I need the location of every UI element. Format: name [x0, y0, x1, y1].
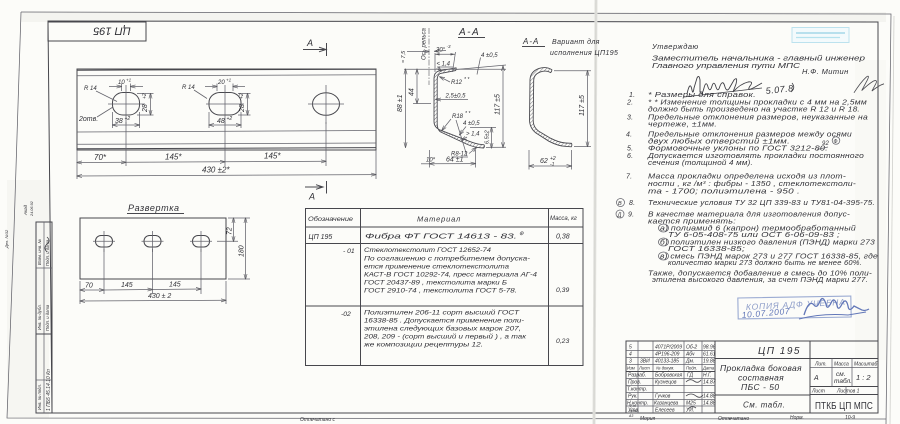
svg-text:+2: +2 — [239, 93, 245, 99]
svg-text:4: 4 — [629, 352, 632, 358]
svg-text:8.: 8. — [629, 200, 635, 207]
svg-text:См. табл.: См. табл. — [743, 401, 785, 410]
svg-text:Изм: Изм — [627, 366, 635, 371]
svg-text:ГД: ГД — [687, 373, 694, 379]
svg-text:Ось рельса: Ось рельса — [422, 27, 428, 60]
svg-text:ГОСТ 20437-89 , текстолита м: ГОСТ 20437-89 , текстолита марки Б — [364, 280, 508, 287]
svg-text:Фибра ФТ ГОСТ 14613 - 83.: Фибра ФТ ГОСТ 14613 - 83. — [365, 233, 517, 241]
svg-text:24.06.92: 24.06.92 — [30, 200, 34, 217]
svg-text:+1: +1 — [126, 78, 132, 83]
svg-text:Технические условия ТУ 32 ЦП: Технические условия ТУ 32 ЦП 339-83 и ТУ… — [648, 200, 875, 207]
svg-text:Прокладка боковая: Прокладка боковая — [720, 363, 802, 373]
svg-text:Лист: Лист — [638, 366, 650, 371]
svg-text:Разраб.: Разраб. — [628, 373, 646, 379]
svg-text:92: 92 — [822, 141, 830, 147]
svg-text:Предельные отклонения размеров: Предельные отклонения размеров, неуказан… — [648, 114, 868, 122]
svg-text:должно быть произведено на уча: должно быть произведено на участке R 12 … — [648, 106, 860, 114]
svg-text:3: 3 — [629, 359, 632, 365]
svg-text:Рук.: Рук. — [628, 394, 638, 400]
svg-text:Формовочные уклоны по ГОСТ: Формовочные уклоны по ГОСТ 3212-80. — [648, 146, 828, 153]
svg-text:Норм.: Норм. — [790, 415, 804, 421]
svg-text:количество марки 273 должно бы: количество марки 273 должно быть не мене… — [668, 259, 862, 267]
svg-text:180: 180 — [239, 245, 246, 257]
svg-text:Акад: Акад — [23, 204, 28, 216]
svg-text:38: 38 — [115, 118, 123, 125]
svg-text:пров.: пров. — [629, 409, 638, 413]
svg-text:Взам. инв. №: Взам. инв. № — [37, 239, 42, 265]
svg-text:двух любых отверстий ±1мм.: двух любых отверстий ±1мм. — [648, 138, 790, 146]
svg-text:10-9: 10-9 — [845, 415, 855, 421]
svg-text:Стеклотекстолит ГОСТ 12652-74: Стеклотекстолит ГОСТ 12652-74 — [364, 247, 491, 254]
svg-text:16338-85 . Допускается примен: 16338-85 . Допускается применение поли- — [364, 318, 525, 325]
svg-text:КАСТ-В ГОСТ 10292-74, пресс: КАСТ-В ГОСТ 10292-74, пресс материала АГ… — [364, 272, 537, 279]
svg-text:-1: -1 — [550, 162, 555, 168]
svg-text:ности , кг /м³ : фибры - 135: ности , кг /м³ : фибры - 1350 , стеклоте… — [648, 180, 857, 188]
svg-text:4 ±0,5: 4 ±0,5 — [463, 121, 480, 127]
svg-text:-3: -3 — [447, 44, 451, 49]
svg-text:3.: 3. — [627, 115, 633, 122]
svg-text:составная: составная — [738, 373, 784, 383]
svg-text:исполнения ЦП195: исполнения ЦП195 — [550, 50, 618, 57]
svg-text:Об-2: Об-2 — [686, 345, 697, 351]
svg-text:14.87: 14.87 — [703, 380, 716, 386]
svg-text:Материал: Материал — [417, 215, 461, 224]
svg-text:табл.: табл. — [834, 377, 852, 385]
svg-text:48: 48 — [217, 118, 225, 125]
svg-text:ПБС - 50: ПБС - 50 — [741, 382, 780, 392]
svg-text:Д: Д — [617, 213, 622, 219]
svg-text:14.88: 14.88 — [703, 394, 716, 400]
svg-text:№ докум.: № докум. — [656, 366, 674, 371]
svg-text:28: 28 — [142, 104, 149, 113]
svg-text:А: А — [306, 38, 313, 48]
svg-text:Предельные отклонения размеров: Предельные отклонения размеров между ося… — [648, 131, 852, 139]
svg-text:* *: * * — [464, 77, 470, 83]
svg-text:сечения (толщиной 4 мм).: сечения (толщиной 4 мм). — [648, 159, 753, 167]
svg-text:Листов 1: Листов 1 — [836, 389, 860, 395]
svg-text:⊛: ⊛ — [519, 231, 524, 237]
svg-text:430 ±2*: 430 ±2* — [202, 166, 230, 175]
svg-text:Подп. и дата: Подп. и дата — [45, 304, 50, 331]
svg-text:145*: 145* — [165, 153, 182, 162]
svg-text:чертеже, ±1мм.: чертеже, ±1мм. — [648, 122, 717, 129]
svg-text:2отв.: 2отв. — [78, 116, 98, 123]
svg-text:1 : 2: 1 : 2 — [856, 373, 871, 382]
svg-text:ГОСТ 2910-74 , текстолита: ГОСТ 2910-74 , текстолита ГОСТ 5-78. — [364, 288, 517, 295]
svg-text:А-А: А-А — [522, 37, 539, 46]
svg-text:+2: +2 — [142, 93, 148, 99]
svg-text:та - 1700; полиэтилена - 950: та - 1700; полиэтилена - 950 . — [648, 189, 800, 196]
svg-text:* Размеры для справок.: * Размеры для справок. — [648, 91, 756, 99]
svg-text:0,23: 0,23 — [556, 338, 569, 345]
svg-text:7.: 7. — [626, 174, 632, 181]
svg-text:А: А — [813, 375, 819, 382]
svg-text:0,38: 0,38 — [556, 234, 570, 241]
svg-text:430 ± 2: 430 ± 2 — [148, 293, 171, 300]
svg-text:≈ 7,5: ≈ 7,5 — [401, 50, 407, 63]
svg-text:А3: А3 — [628, 414, 633, 418]
svg-text:Масса: Масса — [834, 362, 849, 368]
svg-text:Бобровская: Бобровская — [655, 373, 683, 379]
svg-text:R12: R12 — [451, 80, 463, 86]
svg-text:4Р196-209: 4Р196-209 — [655, 352, 680, 358]
svg-text:R 14: R 14 — [182, 85, 195, 91]
svg-text:R18: R18 — [452, 114, 464, 120]
svg-text:9.: 9. — [628, 212, 634, 219]
svg-text:Допускается изготовлять прокла: Допускается изготовлять прокладки постоя… — [647, 152, 864, 160]
svg-text:19.88: 19.88 — [703, 359, 716, 365]
svg-text:117 ±5: 117 ±5 — [495, 94, 502, 115]
svg-text:Главного управления пути МПС: Главного управления пути МПС — [652, 61, 801, 70]
svg-text:R 14: R 14 — [84, 86, 97, 92]
svg-text:* *: * * — [465, 111, 471, 117]
svg-text:Пров.: Пров. — [628, 380, 641, 386]
svg-text:62: 62 — [540, 158, 548, 165]
svg-text:40133-185: 40133-185 — [655, 359, 679, 365]
svg-text:В качестве материала для и: В качестве материала для изготовления до… — [648, 211, 851, 219]
svg-text:В: В — [618, 201, 622, 207]
svg-text:145: 145 — [169, 282, 181, 289]
svg-text:10: 10 — [118, 80, 125, 86]
svg-text:Утверждаю: Утверждаю — [651, 42, 699, 51]
svg-text:М25: М25 — [686, 401, 696, 407]
svg-text:1 ПБ5 45.14.10 Кп: 1 ПБ5 45.14.10 Кп — [46, 369, 52, 411]
svg-text:3ВИ: 3ВИ — [640, 359, 650, 365]
svg-text:По соглашению с потребителем: По соглашению с потребителем допуска- — [364, 255, 531, 263]
svg-text:28: 28 — [239, 104, 246, 113]
svg-text:А: А — [308, 192, 315, 202]
svg-text:1.: 1. — [629, 92, 635, 99]
svg-text:же композиции рецептуры 12.: же композиции рецептуры 12. — [363, 342, 483, 349]
svg-text:Развертка: Развертка — [128, 203, 180, 213]
svg-text:ется применение стеклотексто: ется применение стеклотекстолита — [364, 264, 509, 271]
svg-text:10*: 10* — [426, 158, 436, 164]
svg-text:ЦП 195: ЦП 195 — [92, 25, 130, 37]
svg-text:0,39: 0,39 — [556, 287, 569, 294]
svg-text:70*: 70* — [94, 153, 107, 162]
svg-text:см.: см. — [836, 371, 846, 378]
svg-text:Отпечатано с: Отпечатано с — [300, 417, 335, 423]
svg-text:А-А: А-А — [458, 27, 480, 38]
svg-text:98.96: 98.96 — [703, 345, 716, 351]
svg-text:Вариант для: Вариант для — [552, 38, 600, 46]
svg-text:Инв. № дубл.: Инв. № дубл. — [37, 304, 42, 330]
svg-text:Т.контр.: Т.контр. — [627, 387, 647, 393]
svg-text:< 1,4: < 1,4 — [437, 62, 451, 68]
svg-text:+2: +2 — [125, 116, 131, 122]
svg-text:61.61: 61.61 — [703, 352, 716, 358]
svg-text:Лист: Лист — [811, 389, 825, 395]
svg-text:Абч: Абч — [685, 352, 695, 358]
svg-text:-02: -02 — [341, 311, 351, 318]
svg-text:Дата: Дата — [702, 366, 715, 371]
svg-text:88 ±1: 88 ±1 — [397, 94, 404, 112]
svg-text:Деп. №32: Деп. №32 — [4, 229, 9, 249]
svg-text:Дм.: Дм. — [685, 359, 694, 365]
svg-text:5.07.8: 5.07.8 — [765, 83, 794, 96]
svg-text:Казанцева: Казанцева — [654, 401, 679, 407]
svg-text:Ф-т: Ф-т — [629, 404, 636, 408]
svg-text:этилена высокого давления, за: этилена высокого давления, за счет ПЭНД … — [652, 276, 868, 284]
svg-text:Елесеев: Елесеев — [655, 408, 675, 414]
svg-text:30°: 30° — [436, 48, 446, 54]
svg-text:+1: +1 — [226, 78, 232, 83]
svg-text:4 ±0,5: 4 ±0,5 — [481, 53, 498, 59]
svg-text:64 ±1: 64 ±1 — [446, 157, 464, 164]
svg-text:Гучков: Гучков — [655, 394, 671, 400]
svg-text:6.: 6. — [627, 153, 633, 160]
svg-text:ЦП 195: ЦП 195 — [758, 346, 801, 357]
svg-text:Кузнецов: Кузнецов — [655, 380, 677, 386]
svg-text:72: 72 — [227, 227, 234, 235]
svg-text:14.88: 14.88 — [703, 401, 716, 407]
svg-text:Ф: Ф — [834, 139, 838, 145]
svg-text:Н.Г.: Н.Г. — [703, 373, 712, 379]
svg-text:5.: 5. — [627, 146, 633, 153]
svg-text:ЦП 195: ЦП 195 — [309, 234, 333, 241]
svg-text:УИ.: УИ. — [686, 408, 694, 414]
svg-text:* * Изменение толщины прокладк: * * Изменение толщины прокладки с 4 мм н… — [648, 99, 867, 107]
svg-text:70: 70 — [85, 283, 93, 290]
svg-text:4071Р/2009: 4071Р/2009 — [655, 345, 682, 351]
svg-text:Масса, кг: Масса, кг — [550, 216, 577, 222]
svg-text:ГОСТ 16338-85;: ГОСТ 16338-85; — [668, 246, 745, 253]
svg-text:2.: 2. — [626, 100, 633, 107]
svg-text:- 01: - 01 — [343, 248, 355, 255]
svg-text:> 1,4: > 1,4 — [466, 132, 480, 138]
svg-text:Инв. № подл.: Инв. № подл. — [37, 384, 42, 410]
svg-text:Отпечатано: Отпечатано — [718, 416, 749, 422]
svg-text:5: 5 — [629, 345, 632, 351]
svg-text:ТУ 6-05-408-75 или ОСТ 6-06-: ТУ 6-05-408-75 или ОСТ 6-06-09-83 ; — [668, 232, 840, 239]
svg-text:Лит.: Лит. — [814, 362, 827, 368]
svg-text:этилена следующих базовых м: этилена следующих базовых марок 207, — [364, 325, 521, 333]
svg-text:Масштаб: Масштаб — [854, 362, 878, 368]
svg-text:Полиэтилен 206-11 сорт высший: Полиэтилен 206-11 сорт высший ГОСТ — [364, 309, 520, 317]
svg-text:2,5±0,5: 2,5±0,5 — [445, 94, 467, 100]
svg-text:Масса прокладки определена: Масса прокладки определена исходя из пло… — [648, 173, 847, 181]
svg-text:145: 145 — [121, 282, 133, 289]
svg-text:Обозначение: Обозначение — [308, 215, 353, 223]
svg-text:ПТКБ ЦП МПС: ПТКБ ЦП МПС — [815, 400, 873, 412]
svg-text:6,5±2: 6,5±2 — [485, 130, 491, 144]
svg-text:20: 20 — [217, 80, 225, 86]
svg-text:+2: +2 — [227, 116, 233, 122]
svg-text:Мория: Мория — [640, 416, 656, 422]
svg-text:4.: 4. — [626, 132, 632, 139]
svg-text:145*: 145* — [264, 152, 281, 161]
svg-text:44: 44 — [409, 88, 416, 96]
svg-text:117 ±5: 117 ±5 — [579, 95, 586, 116]
svg-text:Подп.: Подп. — [686, 366, 697, 371]
svg-text:Н.Ф. Митин: Н.Ф. Митин — [802, 67, 849, 76]
svg-text:208, 209 - (сорт высший и п: 208, 209 - (сорт высший и первый ) , а т… — [363, 333, 527, 341]
